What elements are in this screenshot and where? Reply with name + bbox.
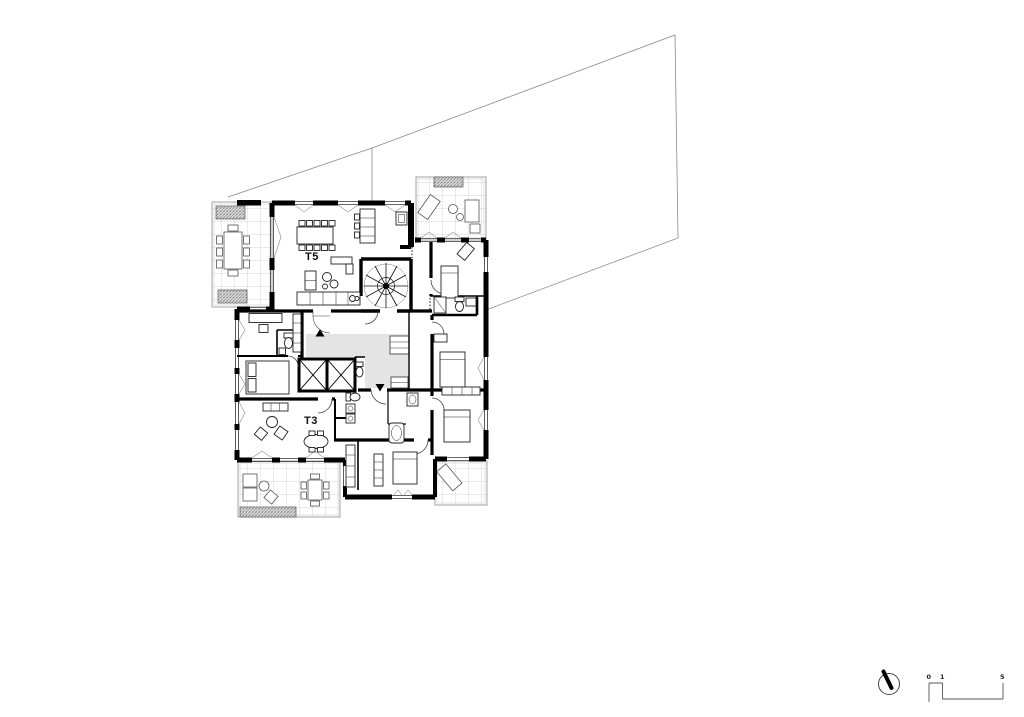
bedroom-east xyxy=(434,334,465,387)
terrace-parapet-wall xyxy=(237,200,261,206)
furniture-bedrooms xyxy=(246,242,480,487)
north-arrow-icon xyxy=(879,672,900,695)
bedroom-southeast xyxy=(442,387,480,442)
planter-box xyxy=(434,177,463,187)
planter-box xyxy=(240,507,296,517)
floor-plan-page: T5 T3 0 1 5 xyxy=(0,0,1024,717)
scale-tick-5: 5 xyxy=(1000,673,1005,681)
scale-tick-1: 1 xyxy=(940,673,945,681)
elevator-shafts xyxy=(299,359,355,391)
scale-tick-0: 0 xyxy=(927,673,932,681)
terrace-southwest xyxy=(238,461,340,517)
apartment-t5-label: T5 xyxy=(305,251,319,263)
floor-plan-canvas: T5 T3 0 1 5 xyxy=(0,0,1024,717)
terrace-northwest xyxy=(212,202,272,307)
furniture-unit-t3 xyxy=(254,403,328,452)
apartment-t3-label: T3 xyxy=(304,415,318,427)
terrace-northeast xyxy=(416,177,486,240)
kitchen-island xyxy=(355,209,408,243)
spiral-staircase xyxy=(364,263,408,308)
kitchen-counter xyxy=(297,292,360,305)
bedroom-south xyxy=(346,445,417,487)
bedroom-northeast xyxy=(441,242,474,298)
terrace-southeast xyxy=(435,461,487,505)
scale-bar: 0 1 5 xyxy=(927,673,1006,702)
bedroom-southwest xyxy=(246,361,289,394)
